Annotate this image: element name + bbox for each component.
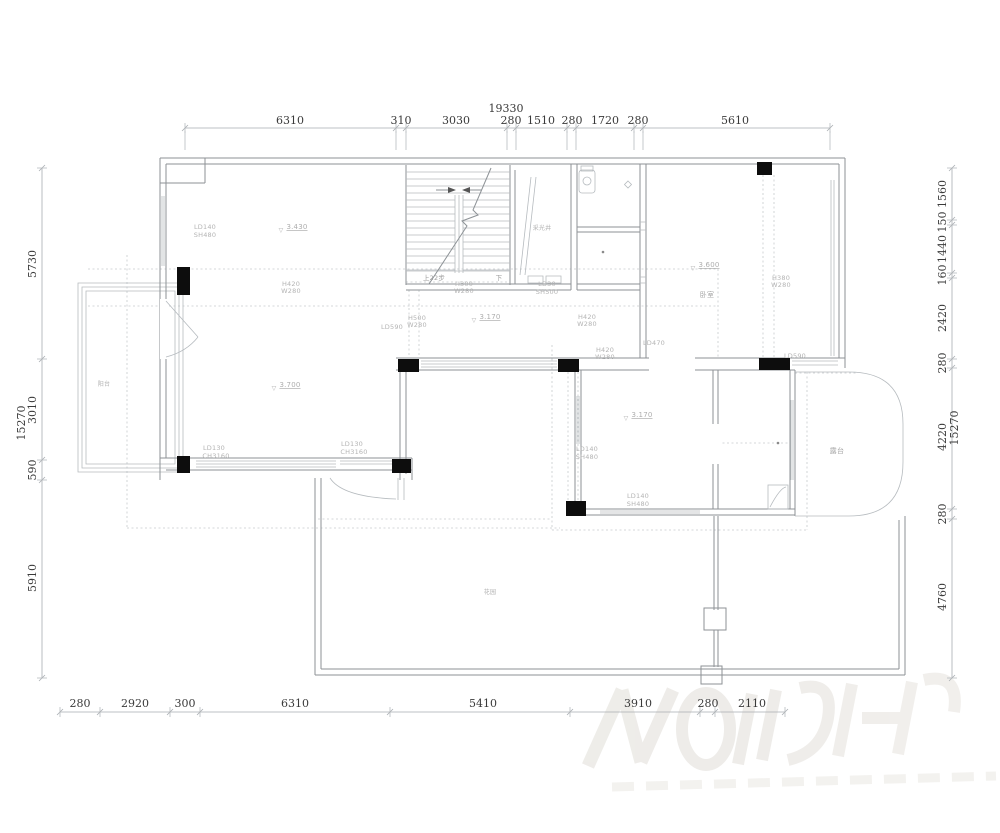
dim-top-8: 280	[628, 114, 649, 127]
label-ld130-b2: CH3160	[340, 448, 367, 456]
toilet-icon	[579, 170, 595, 193]
column	[177, 267, 190, 295]
elev-bedroom: 3.600	[698, 261, 719, 269]
room-terrace: 露台	[830, 446, 844, 455]
room-lightwell: 采光井	[533, 224, 552, 232]
label-ld590-left: LD590	[381, 323, 403, 331]
elev-corridor-mark: ▽	[472, 317, 477, 324]
dim-bottom-5: 5410	[469, 697, 497, 710]
watermark	[588, 679, 996, 787]
door-opening-ld470	[649, 356, 695, 372]
dim-right-3: 1440	[936, 235, 949, 263]
door-opening-balcony	[160, 299, 168, 359]
dim-right-2: 150	[936, 212, 949, 233]
dim-right-9: 4760	[936, 583, 949, 611]
label-h420-c2: W280	[595, 353, 615, 361]
room-garden: 花园	[484, 588, 496, 596]
dim-bottom-6: 3910	[624, 697, 652, 710]
elev-room2: 3.170	[631, 411, 652, 419]
point-marker	[602, 251, 605, 254]
label-ld130-a2: CH3160	[202, 452, 229, 460]
stair-up-label: 上22步	[423, 273, 445, 282]
floor-plan-page: 1933063103103030280151028017202805610280…	[0, 0, 1000, 833]
stair-break-line	[429, 168, 491, 284]
dim-bottom-3: 300	[175, 697, 196, 710]
dim-bottom-8: 2110	[738, 697, 766, 710]
dim-left-4: 5910	[26, 564, 39, 592]
door-opening-room-divider	[712, 424, 720, 464]
column	[757, 162, 772, 175]
elev-corridor: 3.170	[479, 313, 500, 321]
room-balcony: 阳台	[98, 380, 110, 388]
label-ld470: LD470	[643, 339, 665, 347]
room-bedroom: 卧室	[700, 290, 714, 299]
elev-room2-mark: ▽	[624, 415, 629, 422]
dim-right-5: 2420	[936, 304, 949, 332]
label-h420-a2: W280	[281, 287, 301, 295]
dim-top-9: 5610	[721, 114, 749, 127]
stair-arrow-right-icon	[448, 187, 456, 193]
dim-top-7: 1720	[591, 114, 619, 127]
label-h420-b2: W280	[577, 320, 597, 328]
elev-lower-living-mark: ▽	[272, 385, 277, 392]
label-ld30-1: LD30	[538, 280, 556, 288]
dim-right-4: 160	[936, 265, 949, 286]
door-swing-balcony	[166, 301, 198, 357]
dim-bottom-7: 280	[698, 697, 719, 710]
column	[398, 359, 419, 372]
label-ld140-b2: SH480	[576, 453, 598, 461]
dim-right-6: 280	[936, 353, 949, 374]
elev-living-mark: ▽	[279, 227, 284, 234]
label-ld140-c1: LD140	[627, 492, 649, 500]
dim-top-3: 3030	[442, 114, 470, 127]
dim-top-6: 280	[562, 114, 583, 127]
point-marker	[777, 442, 780, 445]
stair-arrow-left-icon	[462, 187, 470, 193]
column	[177, 456, 190, 473]
terrace-outline	[795, 372, 903, 516]
label-h500-2: W280	[407, 321, 427, 329]
dim-top-4: 280	[501, 114, 522, 127]
elev-living: 3.430	[286, 223, 307, 231]
dim-bottom-2: 2920	[121, 697, 149, 710]
label-window-ld140-a2: SH480	[194, 231, 216, 239]
dim-left-1: 5730	[26, 250, 39, 278]
column	[566, 501, 586, 516]
label-ld130-b1: LD130	[341, 440, 363, 448]
stairs	[406, 168, 510, 284]
dim-left-2: 3010	[26, 396, 39, 424]
dim-left-3: 590	[26, 460, 39, 481]
elev-lower-living: 3.700	[279, 381, 300, 389]
label-h380-2: W280	[771, 281, 791, 289]
elev-bedroom-mark: ▽	[691, 265, 696, 272]
dim-right-1: 1560	[936, 180, 949, 208]
columns	[177, 162, 790, 516]
label-ld140-c2: SH480	[627, 500, 649, 508]
label-ld30-2: SH500	[536, 288, 558, 296]
dim-top-2: 310	[391, 114, 412, 127]
dim-top-5: 1510	[527, 114, 555, 127]
label-window-ld140-a1: LD140	[194, 223, 216, 231]
fixtures	[579, 166, 788, 509]
dim-right-total: 15270	[948, 411, 961, 446]
dim-right-8: 280	[936, 504, 949, 525]
post-footing	[704, 608, 726, 630]
dim-bottom-1: 280	[70, 697, 91, 710]
walls	[160, 158, 845, 516]
column	[392, 459, 411, 473]
dim-bottom-4: 6310	[281, 697, 309, 710]
label-ld140-b1: LD140	[576, 445, 598, 453]
dim-top-1: 6310	[276, 114, 304, 127]
label-h300-2: W280	[454, 287, 474, 295]
column	[558, 359, 579, 372]
stair-down-label: 下	[496, 274, 503, 282]
windows	[162, 177, 838, 513]
drain-diamond-icon	[625, 181, 632, 188]
floor-plan-canvas: 1933063103103030280151028017202805610280…	[0, 0, 1000, 833]
label-ld130-a1: LD130	[203, 444, 225, 452]
label-ld590-right: LD590	[784, 352, 806, 360]
toilet-bowl-icon	[583, 177, 591, 185]
